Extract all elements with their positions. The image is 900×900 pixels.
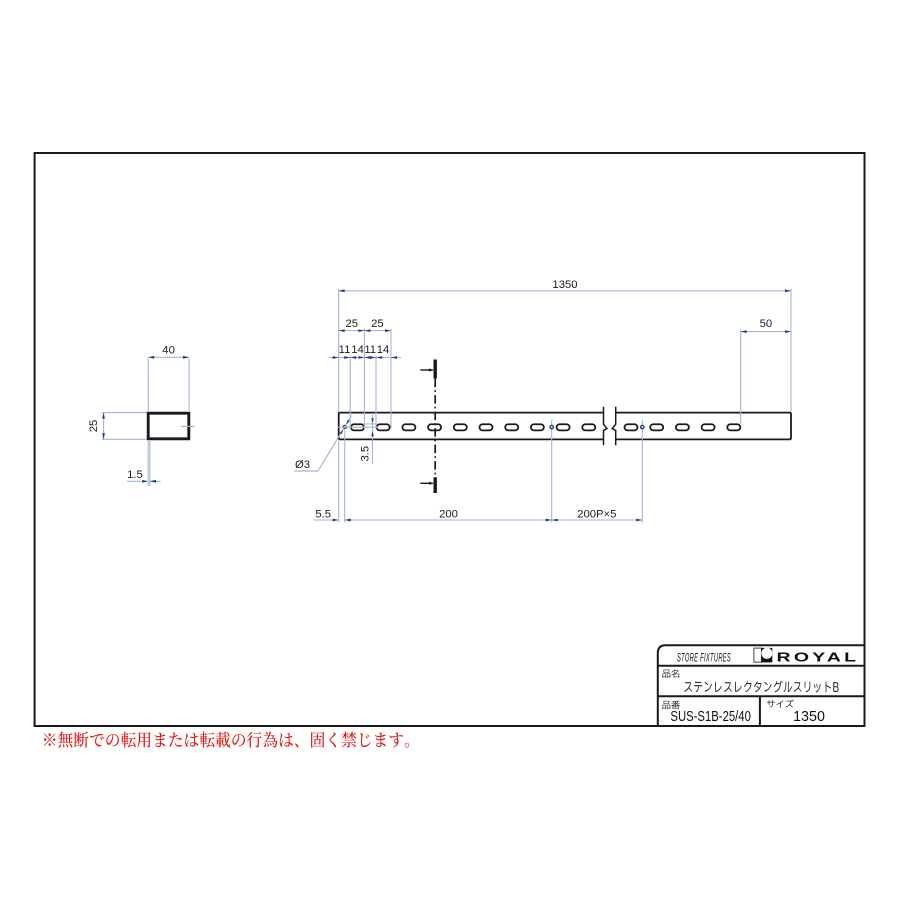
svg-text:1350: 1350: [793, 709, 825, 725]
svg-text:200: 200: [439, 508, 458, 520]
svg-text:200P×5: 200P×5: [577, 508, 616, 520]
svg-text:STORE FIXTURES: STORE FIXTURES: [677, 651, 731, 664]
svg-text:5.5: 5.5: [315, 508, 331, 520]
svg-text:14: 14: [351, 344, 364, 356]
svg-text:14: 14: [377, 344, 390, 356]
svg-text:ROYAL: ROYAL: [777, 651, 860, 665]
svg-text:SUS-S1B-25/40: SUS-S1B-25/40: [670, 709, 751, 725]
svg-text:40: 40: [162, 344, 175, 356]
svg-text:25: 25: [371, 318, 384, 330]
svg-text:50: 50: [760, 318, 773, 330]
svg-text:1350: 1350: [552, 279, 577, 291]
svg-text:25: 25: [346, 318, 359, 330]
svg-text:1.5: 1.5: [127, 469, 143, 481]
svg-text:3.5: 3.5: [360, 446, 372, 462]
svg-text:Ø3: Ø3: [295, 459, 310, 471]
svg-text:25: 25: [88, 420, 100, 433]
svg-text:11: 11: [364, 344, 376, 356]
svg-text:11: 11: [339, 344, 351, 356]
